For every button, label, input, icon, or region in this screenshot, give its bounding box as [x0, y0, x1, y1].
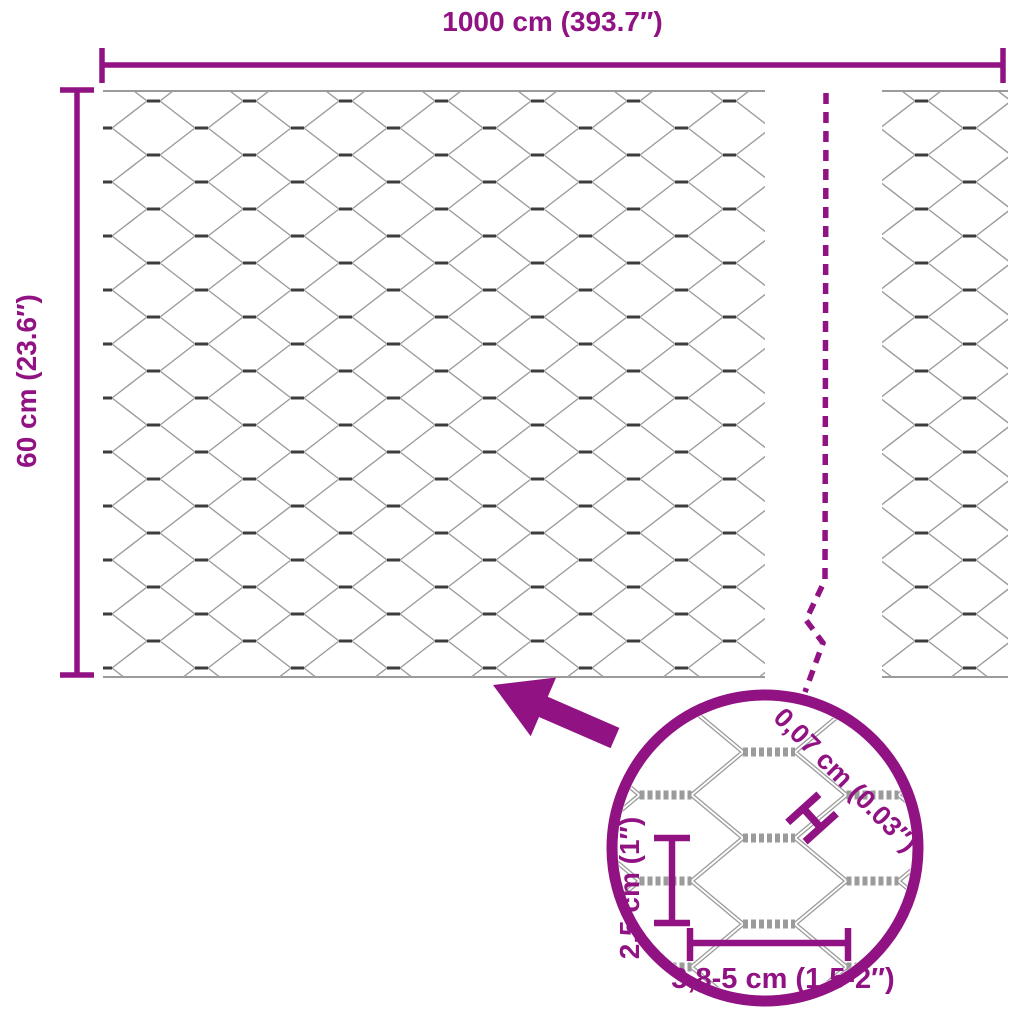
- total-height-label: 60 cm (23.6″): [11, 292, 43, 470]
- total-width-label: 1000 cm (393.7″): [102, 6, 1003, 38]
- mesh-panel-main: [0, 74, 1024, 695]
- product-dimension-diagram: 1000 cm (393.7″) 60 cm (23.6″) 0,07 cm (…: [0, 0, 1024, 1024]
- selvage-wires: [103, 91, 1008, 677]
- mesh-width-label: 3,8-5 cm (1.5-2″): [630, 963, 936, 996]
- break-line: [805, 93, 826, 692]
- diagram-canvas: [0, 0, 1024, 1024]
- height-dimension-line: [60, 90, 94, 675]
- detail-magnifier-circle: [612, 695, 918, 1001]
- mesh-height-label: 2,5 cm (1″): [614, 802, 646, 974]
- detail-arrow-icon: [493, 678, 619, 749]
- width-dimension-line: [102, 48, 1003, 83]
